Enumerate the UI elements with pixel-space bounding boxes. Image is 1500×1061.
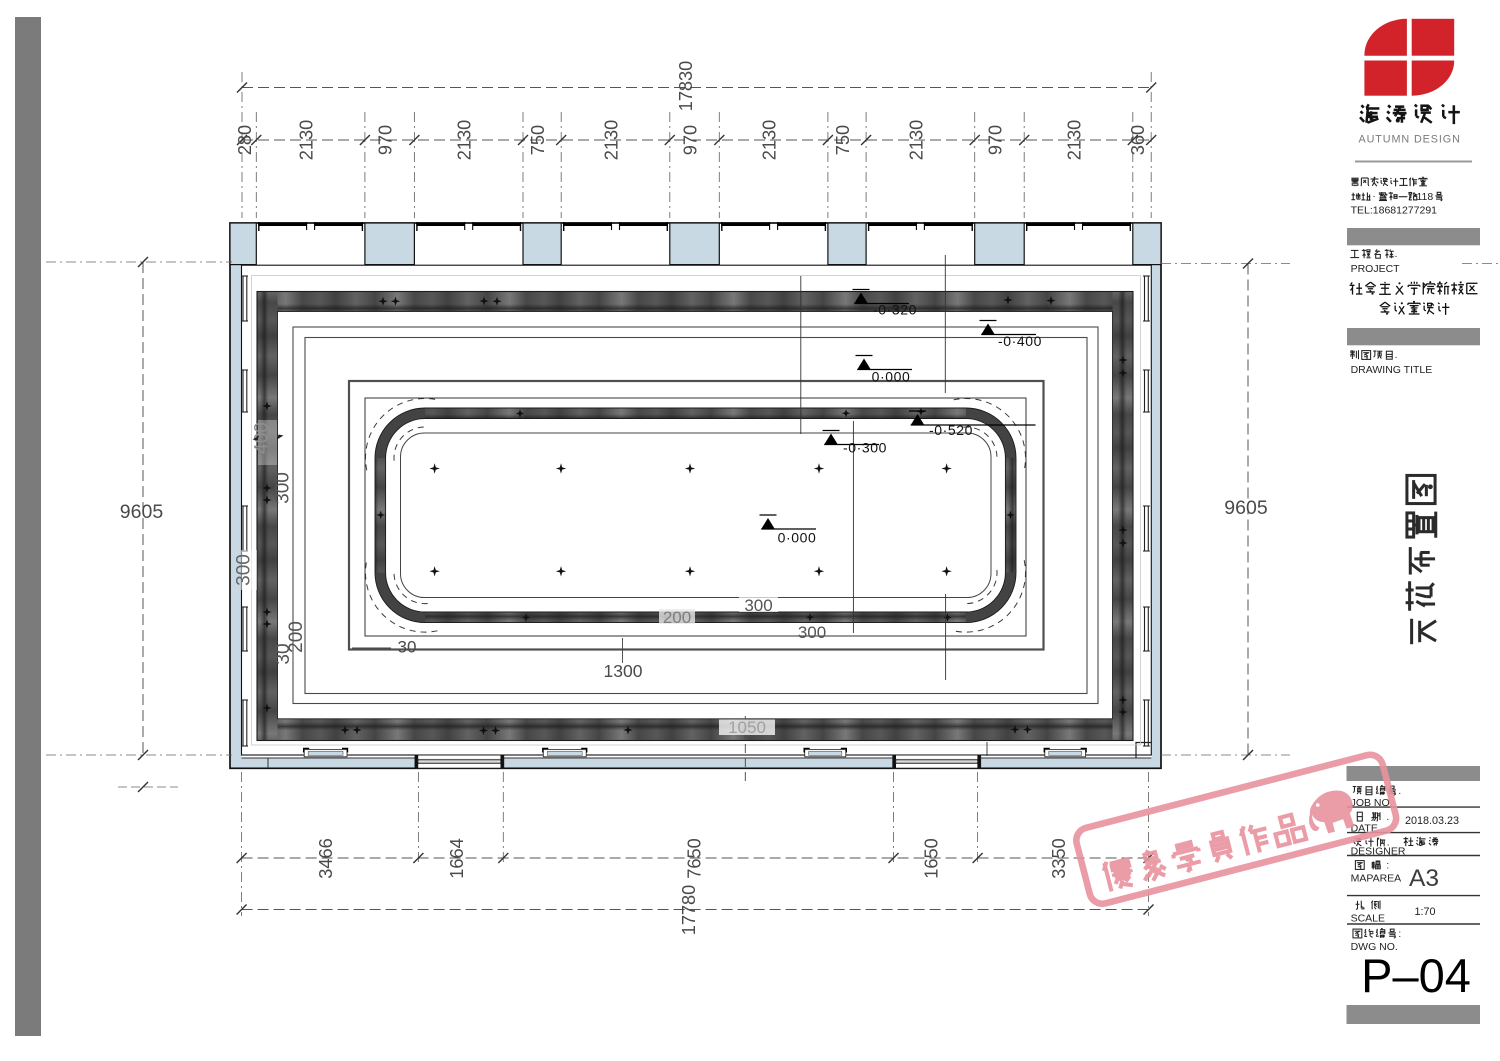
- svg-text:118: 118: [1417, 191, 1434, 203]
- svg-text:2018.03.23: 2018.03.23: [1405, 815, 1459, 827]
- svg-text:-0·400: -0·400: [998, 333, 1042, 349]
- svg-text:P–04: P–04: [1361, 949, 1471, 1002]
- svg-text:2130: 2130: [602, 120, 622, 160]
- svg-text:-0·300: -0·300: [843, 440, 887, 456]
- svg-text:-0·520: -0·520: [929, 422, 973, 438]
- svg-text:300: 300: [273, 472, 294, 504]
- svg-text:17780: 17780: [679, 885, 699, 936]
- svg-text:17830: 17830: [676, 61, 696, 112]
- svg-text:970: 970: [985, 125, 1005, 155]
- svg-text::: :: [1386, 861, 1389, 872]
- svg-text:9605: 9605: [120, 501, 164, 523]
- svg-text:300: 300: [798, 623, 826, 642]
- svg-text:300: 300: [744, 596, 772, 615]
- svg-text:750: 750: [528, 125, 548, 155]
- svg-text:280: 280: [235, 125, 255, 155]
- svg-text:1:70: 1:70: [1414, 906, 1435, 918]
- svg-text:PROJECT: PROJECT: [1351, 263, 1401, 275]
- svg-text:1300: 1300: [604, 661, 643, 681]
- svg-text:1664: 1664: [447, 838, 467, 878]
- svg-text:3466: 3466: [316, 838, 336, 878]
- svg-text:400: 400: [252, 422, 273, 454]
- svg-text:.: .: [1395, 350, 1398, 361]
- svg-text:·: ·: [1372, 191, 1375, 202]
- svg-text:2130: 2130: [906, 120, 926, 160]
- svg-text:.: .: [1398, 786, 1401, 797]
- svg-text:30: 30: [398, 638, 417, 657]
- svg-text:MAPAREA: MAPAREA: [1351, 873, 1402, 885]
- svg-text:970: 970: [681, 125, 701, 155]
- svg-text:.: .: [1395, 249, 1398, 260]
- svg-text:TEL:18681277291: TEL:18681277291: [1351, 205, 1438, 217]
- svg-text:970: 970: [376, 125, 396, 155]
- svg-text:.: .: [1386, 812, 1389, 823]
- svg-text:2130: 2130: [455, 120, 475, 160]
- svg-text:DRAWING TITLE: DRAWING TITLE: [1351, 364, 1433, 376]
- svg-text:7650: 7650: [684, 838, 704, 878]
- svg-text:1050: 1050: [728, 718, 766, 737]
- svg-text:1650: 1650: [922, 838, 942, 878]
- svg-text:0·000: 0·000: [778, 530, 817, 546]
- svg-text:300: 300: [234, 554, 255, 586]
- svg-text:2130: 2130: [1065, 120, 1085, 160]
- svg-text:2130: 2130: [297, 120, 317, 160]
- svg-text:9605: 9605: [1224, 497, 1268, 519]
- svg-text:-0·320: -0·320: [873, 302, 917, 318]
- svg-text:200: 200: [663, 608, 691, 627]
- svg-text:750: 750: [833, 125, 853, 155]
- svg-text:2130: 2130: [760, 120, 780, 160]
- svg-text:360: 360: [1128, 125, 1148, 155]
- svg-text::: :: [1398, 929, 1401, 940]
- svg-text:30: 30: [273, 643, 294, 664]
- svg-text:A3: A3: [1409, 865, 1439, 892]
- svg-text:SCALE: SCALE: [1351, 913, 1385, 925]
- svg-text:AUTUMN DESIGN: AUTUMN DESIGN: [1359, 134, 1461, 146]
- svg-text:0·000: 0·000: [872, 369, 911, 385]
- svg-text:3350: 3350: [1049, 838, 1069, 878]
